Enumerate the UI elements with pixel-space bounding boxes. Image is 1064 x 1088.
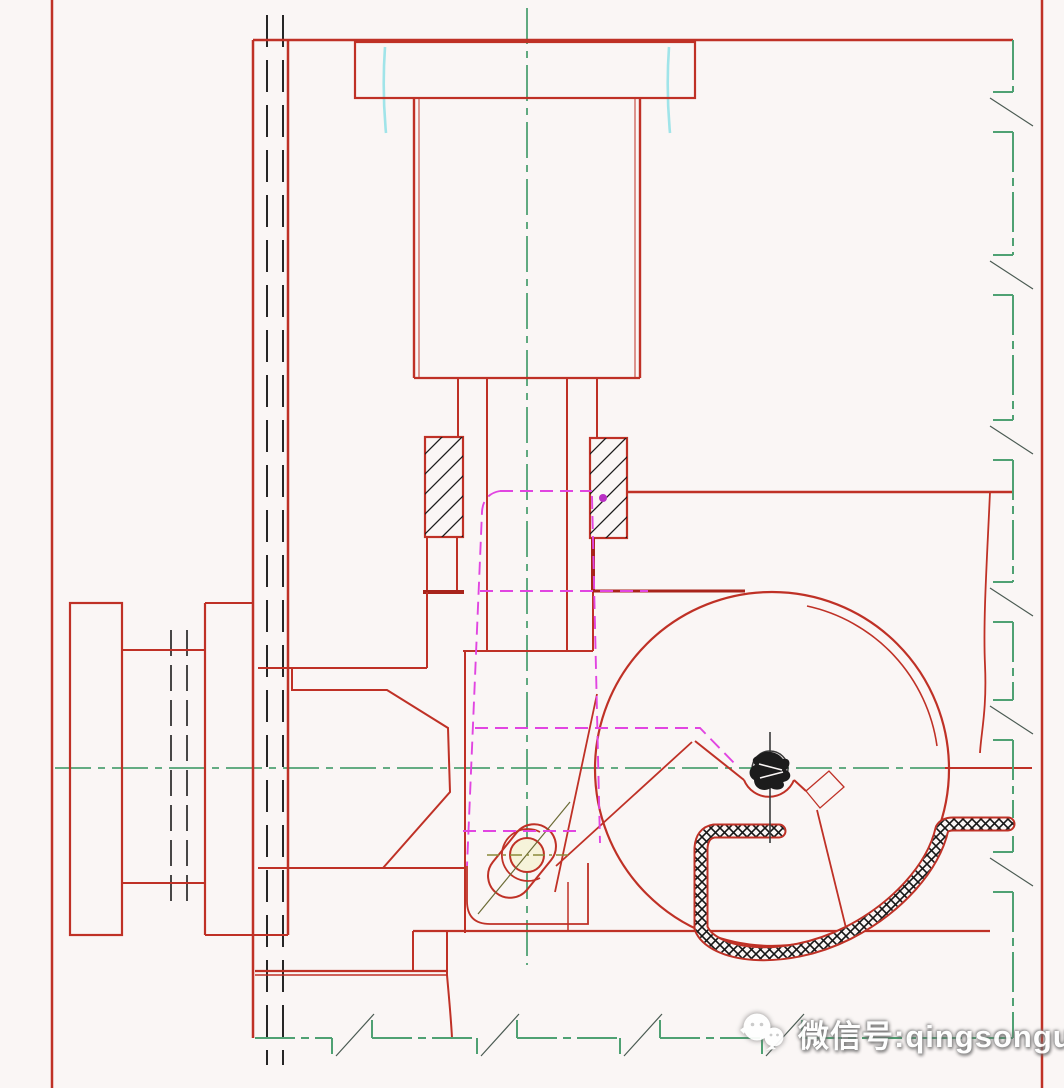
watermark-text: 微信号:qingsongug xyxy=(798,1011,1064,1056)
right-bearing-block xyxy=(589,416,745,651)
right-border-break-line xyxy=(990,40,1033,1038)
cad-drawing xyxy=(0,0,1064,1088)
magenta-reference-dot xyxy=(599,494,607,502)
cad-drawing-canvas: 微信号:qingsongug xyxy=(0,0,1064,1088)
left-shaft-centerline-pair xyxy=(171,630,187,910)
wedge-arm-housing xyxy=(258,651,588,933)
top-flange-cap xyxy=(355,42,695,98)
wechat-icon xyxy=(738,1010,790,1056)
wall-stud-centerline-pair xyxy=(267,15,283,1065)
slot-axis-centerline xyxy=(478,802,570,914)
slot-detail xyxy=(478,802,570,914)
seal-cross-hatch-strip xyxy=(701,824,1008,954)
watermark: 微信号:qingsongug xyxy=(738,1010,1064,1056)
left-bearing-block xyxy=(423,415,464,668)
left-pulley-assembly xyxy=(70,603,288,935)
